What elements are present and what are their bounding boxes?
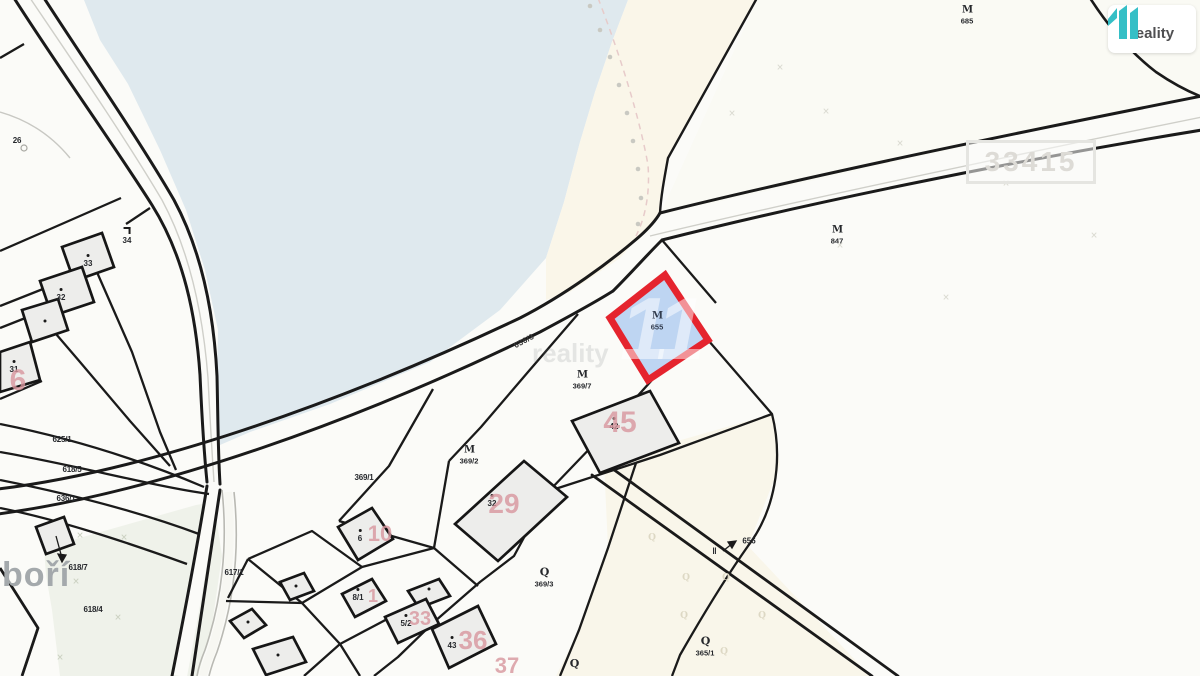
corner-mark-icon xyxy=(124,227,131,234)
building-point-icon xyxy=(428,588,431,591)
parcel-number: 369/3 xyxy=(535,580,554,589)
faint-culture-mark: Q xyxy=(680,611,688,621)
culvert-symbol: ‖ xyxy=(712,546,715,556)
parcel-number-label: 656 xyxy=(742,537,755,546)
building-number-label: 43 xyxy=(448,636,457,650)
building-point-icon xyxy=(277,654,280,657)
parcel-number-label: 618/4 xyxy=(83,606,102,614)
grassland-symbol-icon: М xyxy=(464,445,474,456)
building-number-label xyxy=(44,320,47,323)
building-point-icon xyxy=(358,529,361,532)
building-point-icon xyxy=(87,254,90,257)
building-number-label xyxy=(247,621,250,624)
building-point-icon xyxy=(451,636,454,639)
faint-culture-mark: × xyxy=(836,241,844,251)
building-number: 8/1 xyxy=(352,593,363,602)
parcel-number-label: 618/7 xyxy=(68,564,87,572)
house-number-red: 10 xyxy=(368,523,392,545)
building-number-label: 6 xyxy=(358,529,362,543)
garden-symbol-icon: Q xyxy=(701,635,710,648)
building-number-label xyxy=(295,585,298,588)
faint-culture-mark: × xyxy=(776,63,784,73)
building-number-label: 34 xyxy=(123,227,132,245)
house-number-red: 37 xyxy=(495,655,519,676)
building-number-label: 8/1 xyxy=(352,588,363,602)
culture-symbol-label: Q365/1 xyxy=(696,635,715,658)
building-number-label: 33 xyxy=(84,254,93,268)
culture-symbol-label: М369/2 xyxy=(460,445,479,466)
building-point-icon xyxy=(60,288,63,291)
map-sheet-number: 33415 xyxy=(966,140,1096,184)
parcel-number: 655 xyxy=(651,323,664,332)
faint-culture-mark: Q xyxy=(682,573,690,583)
parcel-number: 365/1 xyxy=(696,649,715,658)
house-number-red: 33 xyxy=(409,609,431,629)
faint-culture-mark: × xyxy=(1090,231,1098,241)
parcel-number-label: 636/1 xyxy=(56,495,75,503)
parcel-number-label: 369/1 xyxy=(354,474,373,482)
grassland-symbol-icon: М xyxy=(577,370,587,381)
house-number-red: 1 xyxy=(368,587,378,605)
building-number-label xyxy=(428,588,431,591)
building-point-icon xyxy=(13,360,16,363)
faint-culture-mark: × xyxy=(120,533,128,543)
building-number-label xyxy=(277,654,280,657)
cadastral-map-canvas[interactable]: 11 reality 26625/1618/5636/1618/7618/461… xyxy=(0,0,1200,676)
building-point-icon xyxy=(44,320,47,323)
parcel-number: 369/2 xyxy=(460,457,479,466)
grassland-symbol-icon: М xyxy=(832,225,842,236)
building-point-icon xyxy=(295,585,298,588)
place-name-label: boří xyxy=(2,556,70,595)
house-number-red: 36 xyxy=(459,627,488,653)
parcel-number-label: 618/5 xyxy=(62,466,81,474)
building-number: 43 xyxy=(448,641,457,650)
culture-symbol-label: М685 xyxy=(961,5,974,26)
garden-symbol-icon: Q xyxy=(540,566,549,579)
reality11-logo[interactable]: reality xyxy=(1108,5,1196,53)
map-labels-layer: 26625/1618/5636/1618/7618/4617/1369/1М68… xyxy=(0,0,1200,676)
building-number-label: 32 xyxy=(57,288,66,302)
logo-11-icon xyxy=(1119,5,1127,39)
culture-symbol-label: М655 xyxy=(651,311,664,332)
faint-culture-mark: × xyxy=(728,109,736,119)
faint-culture-mark: × xyxy=(56,653,64,663)
logo-11-icon xyxy=(1108,8,1117,26)
faint-culture-mark: × xyxy=(896,139,904,149)
building-number: 32 xyxy=(57,293,66,302)
faint-culture-mark: Q xyxy=(648,533,656,543)
grassland-symbol-icon: М xyxy=(652,311,662,322)
logo-11-icon xyxy=(1108,5,1138,41)
parcel-number-label: 625/1 xyxy=(52,436,71,444)
culture-symbol-label: Q369/3 xyxy=(535,566,554,589)
parcel-number: 369/7 xyxy=(573,382,592,391)
grassland-symbol-icon: М xyxy=(962,5,972,16)
building-point-icon xyxy=(405,614,408,617)
parcel-number-label: 617/1 xyxy=(224,569,243,577)
faint-culture-mark: Q xyxy=(722,573,730,583)
parcel-number: 685 xyxy=(961,17,974,26)
building-number: 33 xyxy=(84,259,93,268)
building-point-icon xyxy=(357,588,360,591)
faint-culture-mark: × xyxy=(76,531,84,541)
faint-culture-mark: × xyxy=(114,613,122,623)
house-number-red: 6 xyxy=(10,366,27,396)
faint-culture-mark: Q xyxy=(720,647,728,657)
culture-symbol-label: Q xyxy=(570,657,579,671)
faint-culture-mark: × xyxy=(822,107,830,117)
faint-culture-mark: Q xyxy=(758,611,766,621)
faint-culture-mark: × xyxy=(942,293,950,303)
garden-symbol-icon: Q xyxy=(570,657,579,670)
house-number-red: 29 xyxy=(488,490,519,518)
building-number: 34 xyxy=(123,236,132,245)
logo-11-icon xyxy=(1130,7,1138,39)
culture-symbol-label: М369/7 xyxy=(573,370,592,391)
parcel-number-label: 26 xyxy=(13,137,22,145)
house-number-red: 45 xyxy=(603,408,636,438)
building-number: 6 xyxy=(358,534,362,543)
building-point-icon xyxy=(247,621,250,624)
faint-culture-mark: × xyxy=(72,577,80,587)
